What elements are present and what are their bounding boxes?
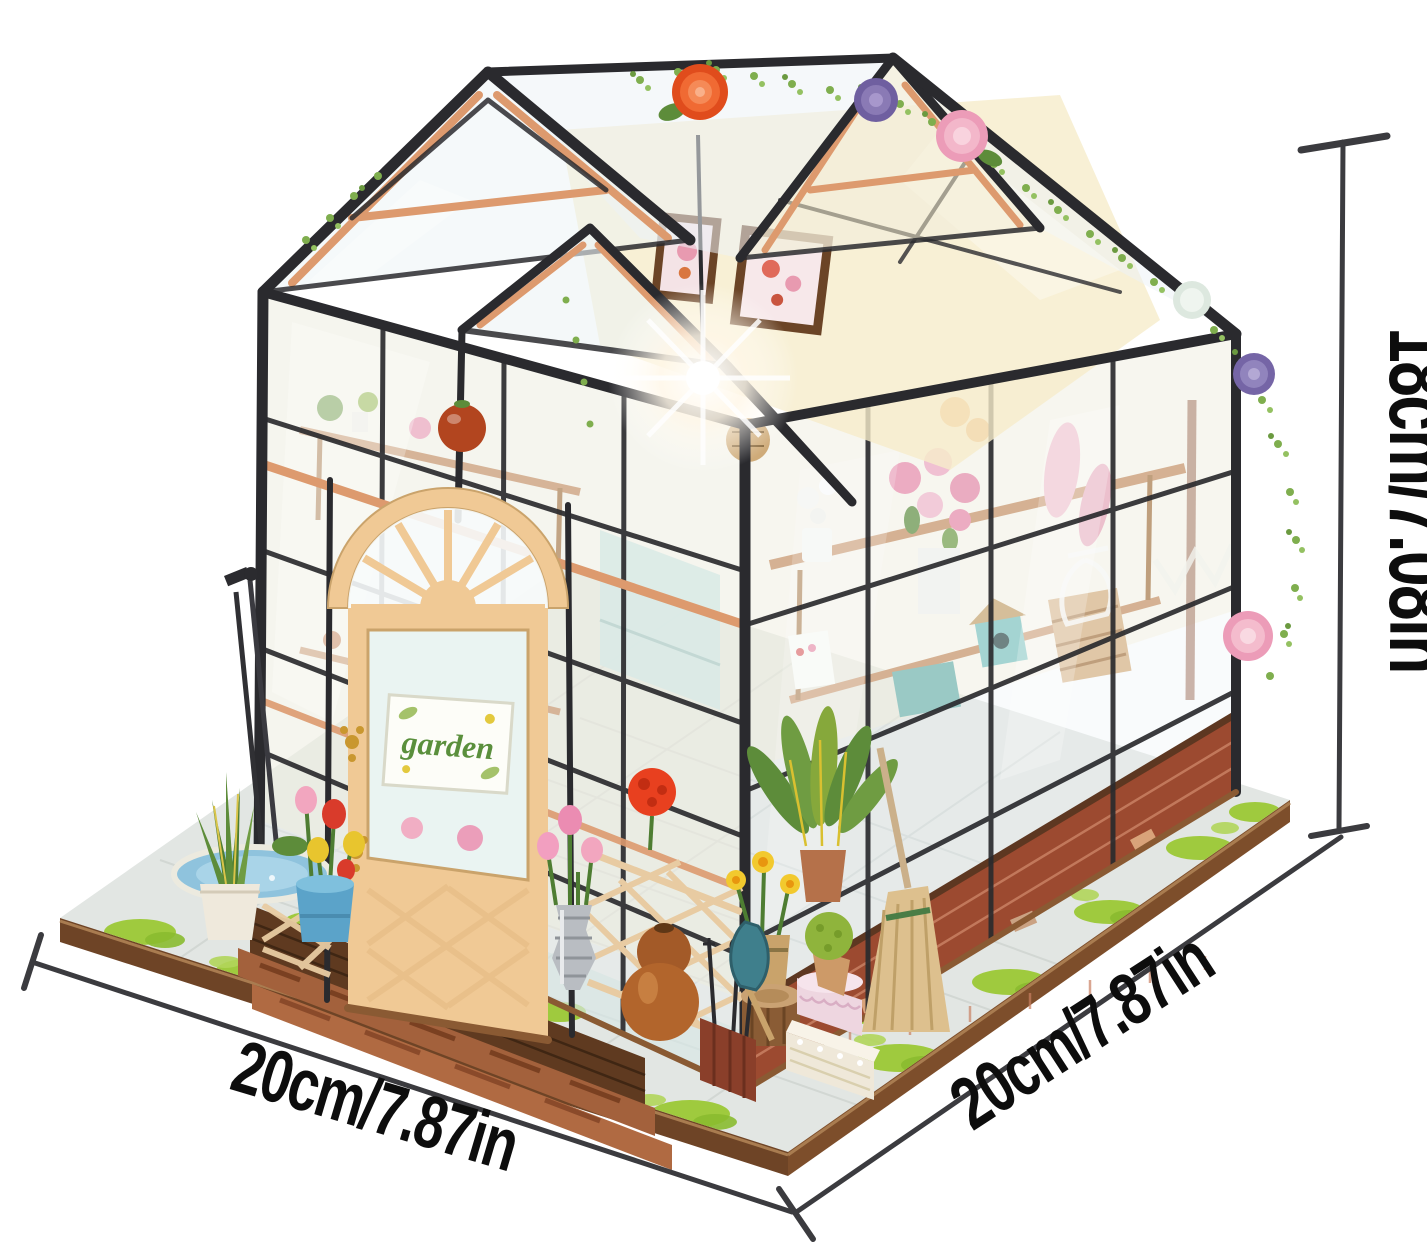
light-flare	[608, 283, 798, 473]
rose-purple-right	[1233, 353, 1275, 395]
garden-sign: garden	[383, 695, 513, 793]
arched-door: garden	[328, 488, 568, 1040]
greenhouse-product-image: garden	[0, 0, 1427, 1246]
dimension-height-label: 18cm/7.08in	[1371, 327, 1427, 672]
dimension-height-line	[1339, 142, 1343, 828]
product-photo-canvas: garden	[0, 0, 1427, 1246]
rose-mint	[1173, 281, 1211, 319]
rose-purple	[854, 78, 898, 122]
rose-pink-right	[1223, 611, 1273, 661]
garden-sign-text: garden	[400, 724, 496, 766]
dimension-height: 18cm/7.08in	[1301, 136, 1427, 836]
